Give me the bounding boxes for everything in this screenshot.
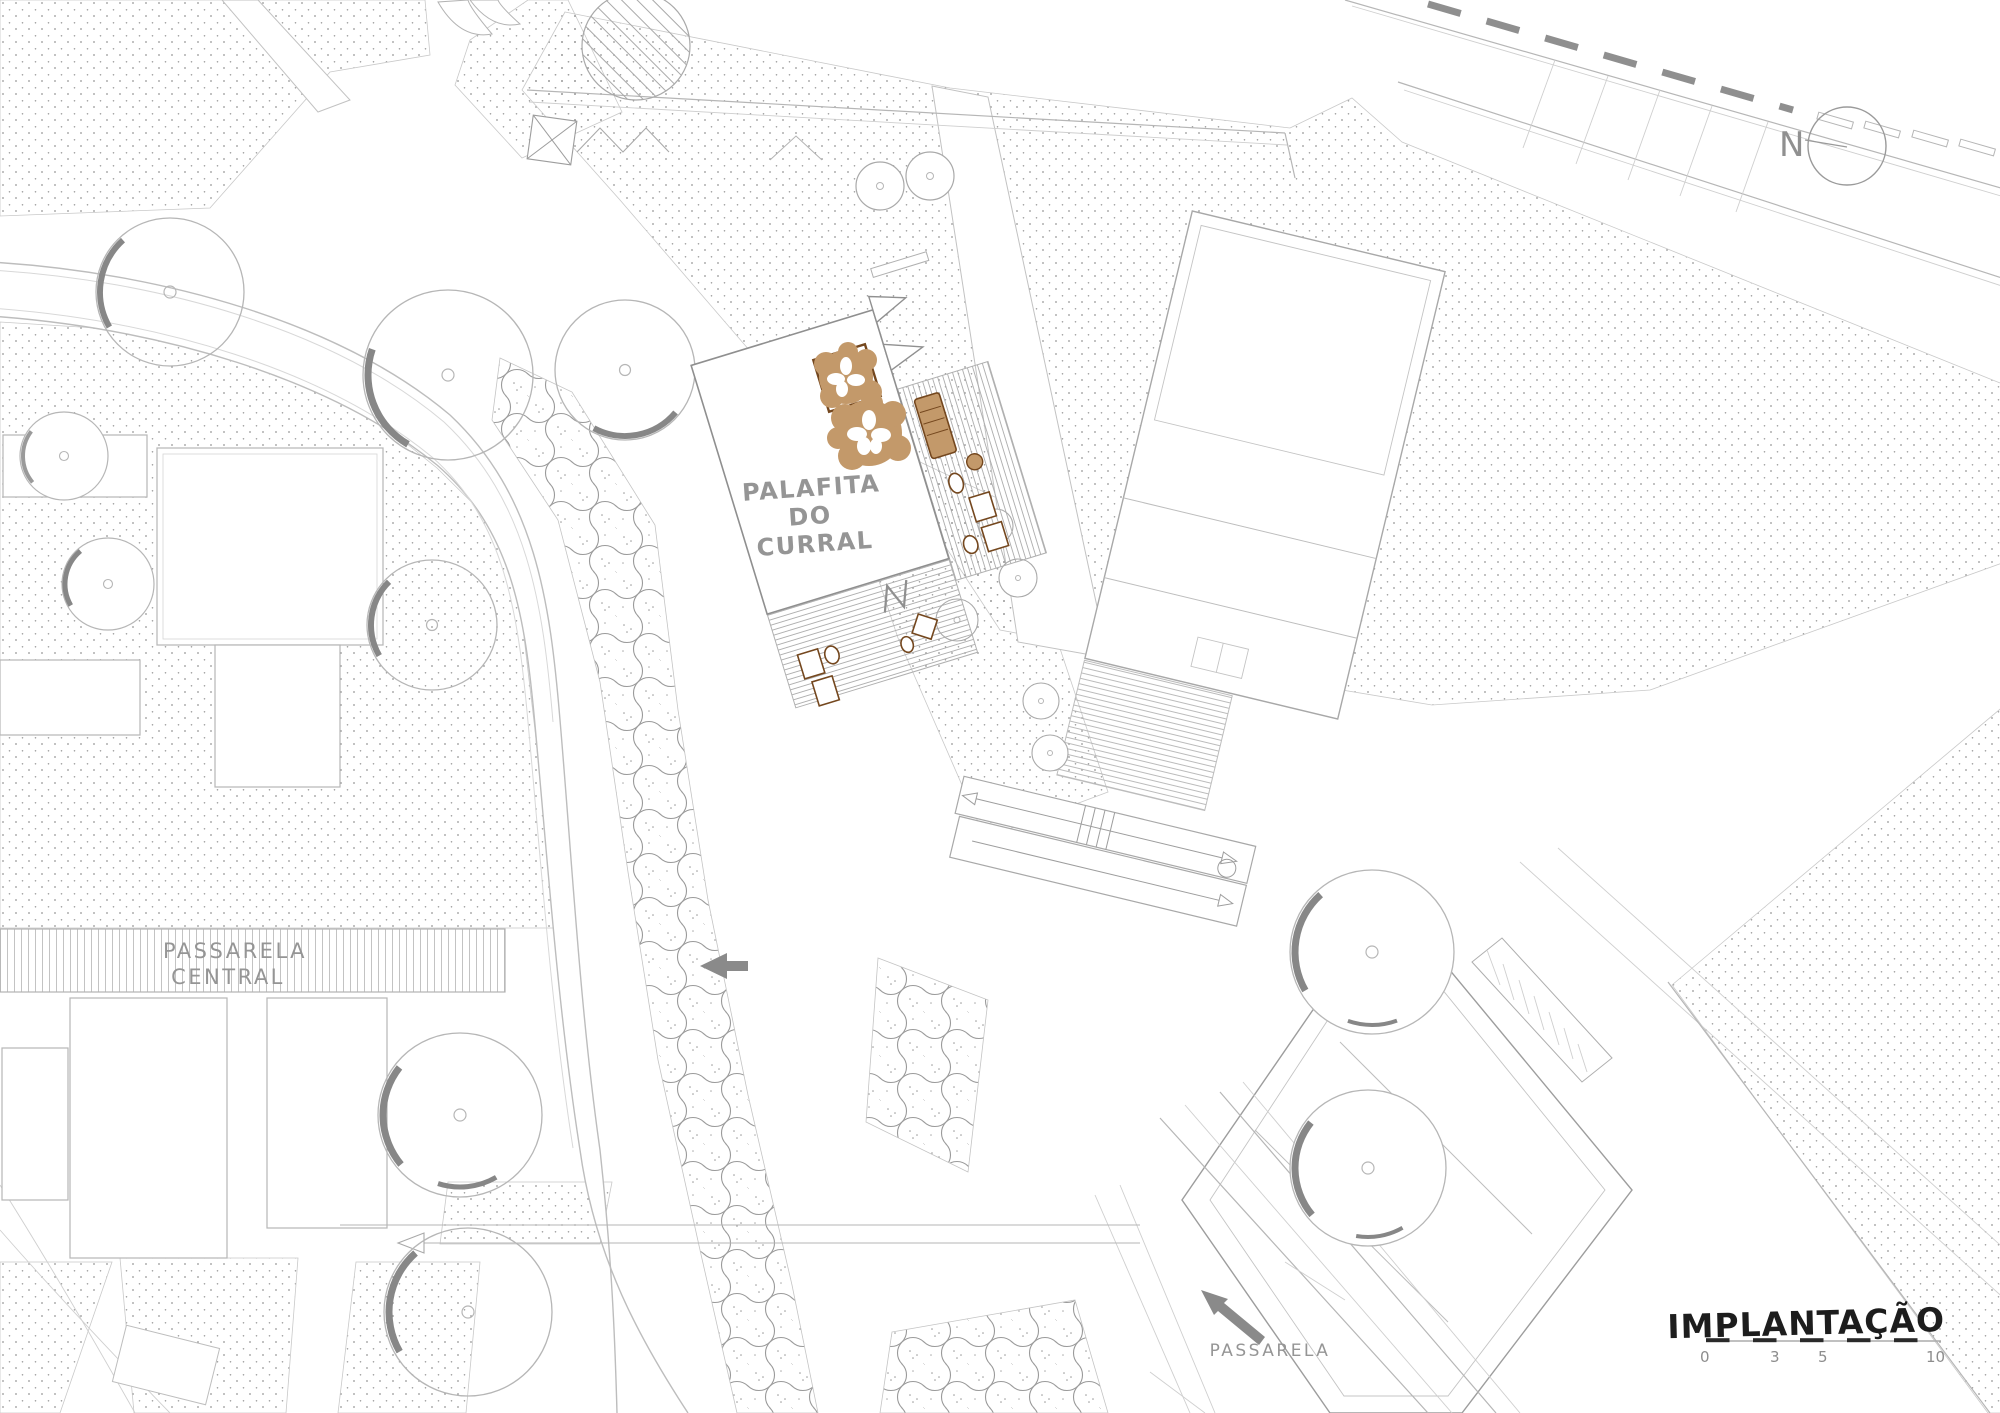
dashed-marker-rects <box>1817 112 1996 156</box>
title-block: IMPLANTAÇÃO 0 3 5 10 <box>1667 1299 1946 1366</box>
small-tree <box>906 152 954 200</box>
north-label: N <box>1779 125 1804 165</box>
scale-tick: 0 <box>1700 1348 1710 1366</box>
scale-tick: 3 <box>1770 1348 1780 1366</box>
small-tree <box>856 162 904 210</box>
scale-tick: 10 <box>1926 1348 1945 1366</box>
scale-tick: 5 <box>1818 1348 1828 1366</box>
access-ramp <box>945 776 1256 926</box>
boundary-dashed-line <box>1428 4 1793 110</box>
passarela-label: PASSARELA <box>1210 1341 1331 1361</box>
svg-text:DO: DO <box>787 501 832 532</box>
central-walkway-band: PASSARELA CENTRAL <box>0 929 505 992</box>
small-tree <box>1023 683 1059 719</box>
central-walkway-label-line1: PASSARELA <box>163 939 307 963</box>
hatched-tree <box>582 0 690 100</box>
small-tree <box>1032 735 1068 771</box>
site-plan-page: PASSARELA CENTRAL <box>0 0 2000 1413</box>
site-plan-drawing: PASSARELA CENTRAL <box>0 0 2000 1413</box>
central-walkway-label-line2: CENTRAL <box>171 965 285 989</box>
crossed-box-marker <box>527 115 577 165</box>
